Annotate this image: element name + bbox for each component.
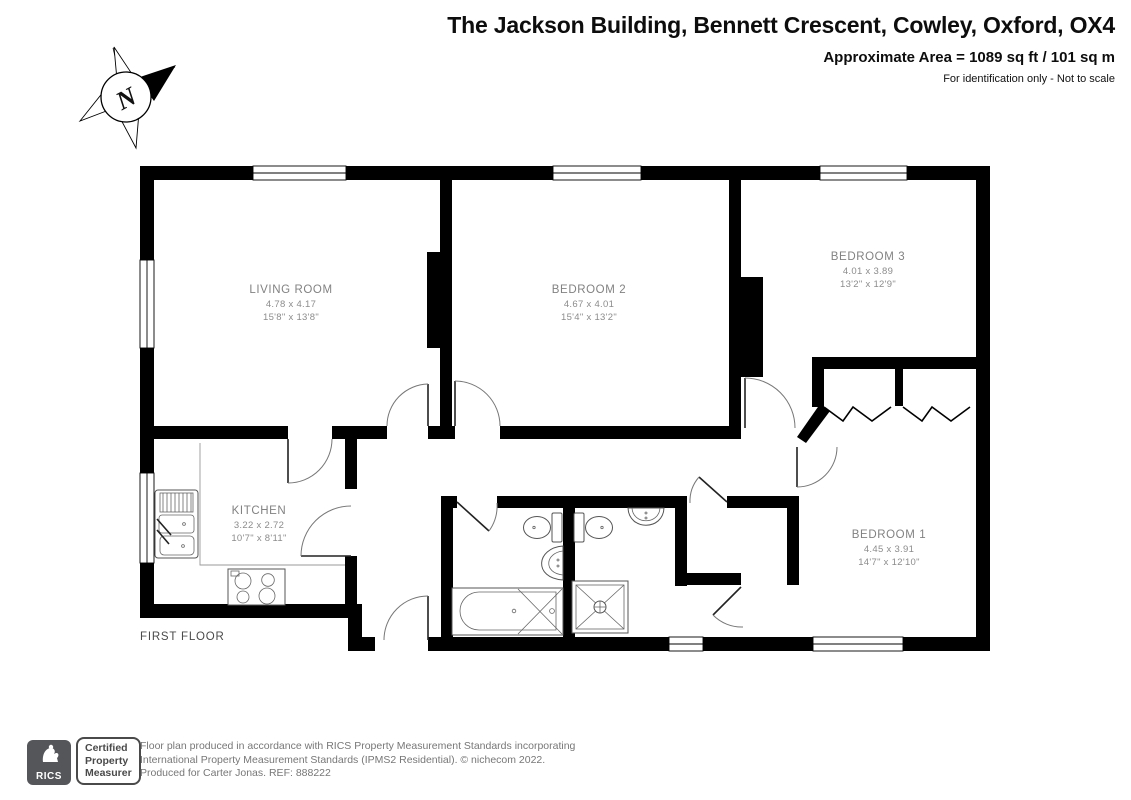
svg-text:15'8" x 13'8": 15'8" x 13'8" <box>263 312 319 323</box>
room-label-bedroom1: BEDROOM 1 4.45 x 3.91 14'7" x 12'10" <box>852 529 926 568</box>
door-bedroom1-lobby <box>713 587 743 627</box>
door-kitchen-living <box>288 439 332 483</box>
toilet-icon <box>574 513 613 542</box>
svg-text:10'7" x 8'11": 10'7" x 8'11" <box>231 533 286 544</box>
svg-text:3.22 x 2.72: 3.22 x 2.72 <box>234 520 284 531</box>
window <box>553 166 641 180</box>
credit-line: Produced for Carter Jonas. REF: 888222 <box>140 767 575 781</box>
window <box>820 166 907 180</box>
svg-text:BEDROOM 3: BEDROOM 3 <box>831 251 905 263</box>
window <box>140 473 154 563</box>
window <box>253 166 346 180</box>
window <box>669 637 703 651</box>
compass-icon: N <box>80 47 176 148</box>
badge-line: Measurer <box>85 767 132 780</box>
rics-logo: RICS <box>27 740 71 785</box>
room-label-bedroom3: BEDROOM 3 4.01 x 3.89 13'2" x 12'9" <box>831 251 905 290</box>
floor-label: FIRST FLOOR <box>140 631 225 643</box>
wash-basin-icon <box>628 508 664 525</box>
hob <box>228 569 285 605</box>
svg-text:BEDROOM 2: BEDROOM 2 <box>552 284 626 296</box>
svg-text:4.67 x 4.01: 4.67 x 4.01 <box>564 299 614 310</box>
floorplan-page: The Jackson Building, Bennett Crescent, … <box>0 0 1131 800</box>
svg-text:13'2" x 12'9": 13'2" x 12'9" <box>840 279 896 290</box>
kitchen-counter <box>200 443 345 565</box>
credit-line: International Property Measurement Stand… <box>140 754 575 768</box>
shower-tray-icon <box>572 581 628 633</box>
svg-text:4.01 x 3.89: 4.01 x 3.89 <box>843 266 893 277</box>
door-bedroom3 <box>745 378 795 428</box>
door-entrance <box>384 596 428 640</box>
toilet-icon <box>524 513 563 542</box>
door-living-room <box>387 384 428 426</box>
room-label-living-room: LIVING ROOM 4.78 x 4.17 15'8" x 13'8" <box>249 284 332 323</box>
floor-plan-drawing: N <box>0 0 1131 800</box>
svg-text:15'4" x 13'2": 15'4" x 13'2" <box>561 312 617 323</box>
door-bedroom2 <box>455 381 500 426</box>
window <box>140 260 154 348</box>
wardrobe-doors <box>824 407 970 421</box>
svg-text:KITCHEN: KITCHEN <box>232 505 287 517</box>
svg-text:LIVING ROOM: LIVING ROOM <box>249 284 332 296</box>
door-shower-room <box>690 477 727 503</box>
room-label-kitchen: KITCHEN 3.22 x 2.72 10'7" x 8'11" <box>231 505 286 544</box>
svg-text:4.45 x 3.91: 4.45 x 3.91 <box>864 544 914 555</box>
svg-text:4.78 x 4.17: 4.78 x 4.17 <box>266 299 316 310</box>
svg-text:14'7" x 12'10": 14'7" x 12'10" <box>858 557 920 568</box>
svg-text:BEDROOM 1: BEDROOM 1 <box>852 529 926 541</box>
rics-logo-text: RICS <box>27 771 71 782</box>
door-kitchen-hall <box>301 506 351 556</box>
door-bathroom <box>457 502 497 531</box>
footer-credits: Floor plan produced in accordance with R… <box>140 740 575 781</box>
credit-line: Floor plan produced in accordance with R… <box>140 740 575 754</box>
certified-property-measurer-badge: Certified Property Measurer <box>76 737 141 785</box>
kitchen-sink <box>155 490 198 558</box>
badge-line: Certified <box>85 742 132 755</box>
room-label-bedroom2: BEDROOM 2 4.67 x 4.01 15'4" x 13'2" <box>552 284 626 323</box>
door-bedroom1 <box>797 447 837 487</box>
window <box>813 637 903 651</box>
badge-line: Property <box>85 755 132 768</box>
bathtub-icon <box>452 588 563 635</box>
wash-basin-icon <box>542 546 563 580</box>
rics-lion-icon <box>27 740 71 768</box>
